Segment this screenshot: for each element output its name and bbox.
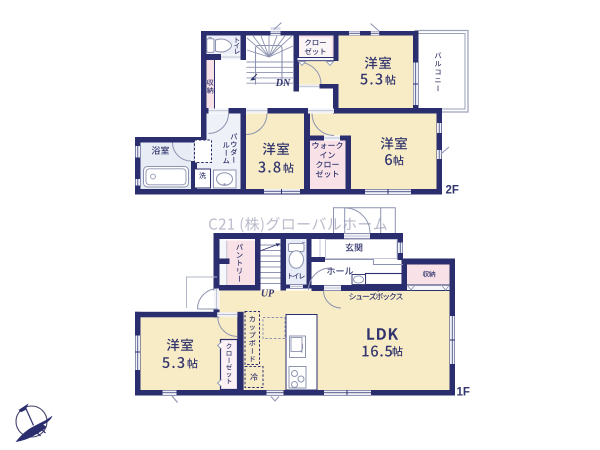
- svg-text:2F: 2F: [446, 185, 459, 197]
- svg-text:DN: DN: [275, 78, 291, 89]
- svg-text:1F: 1F: [457, 387, 470, 399]
- svg-text:UP: UP: [261, 289, 275, 300]
